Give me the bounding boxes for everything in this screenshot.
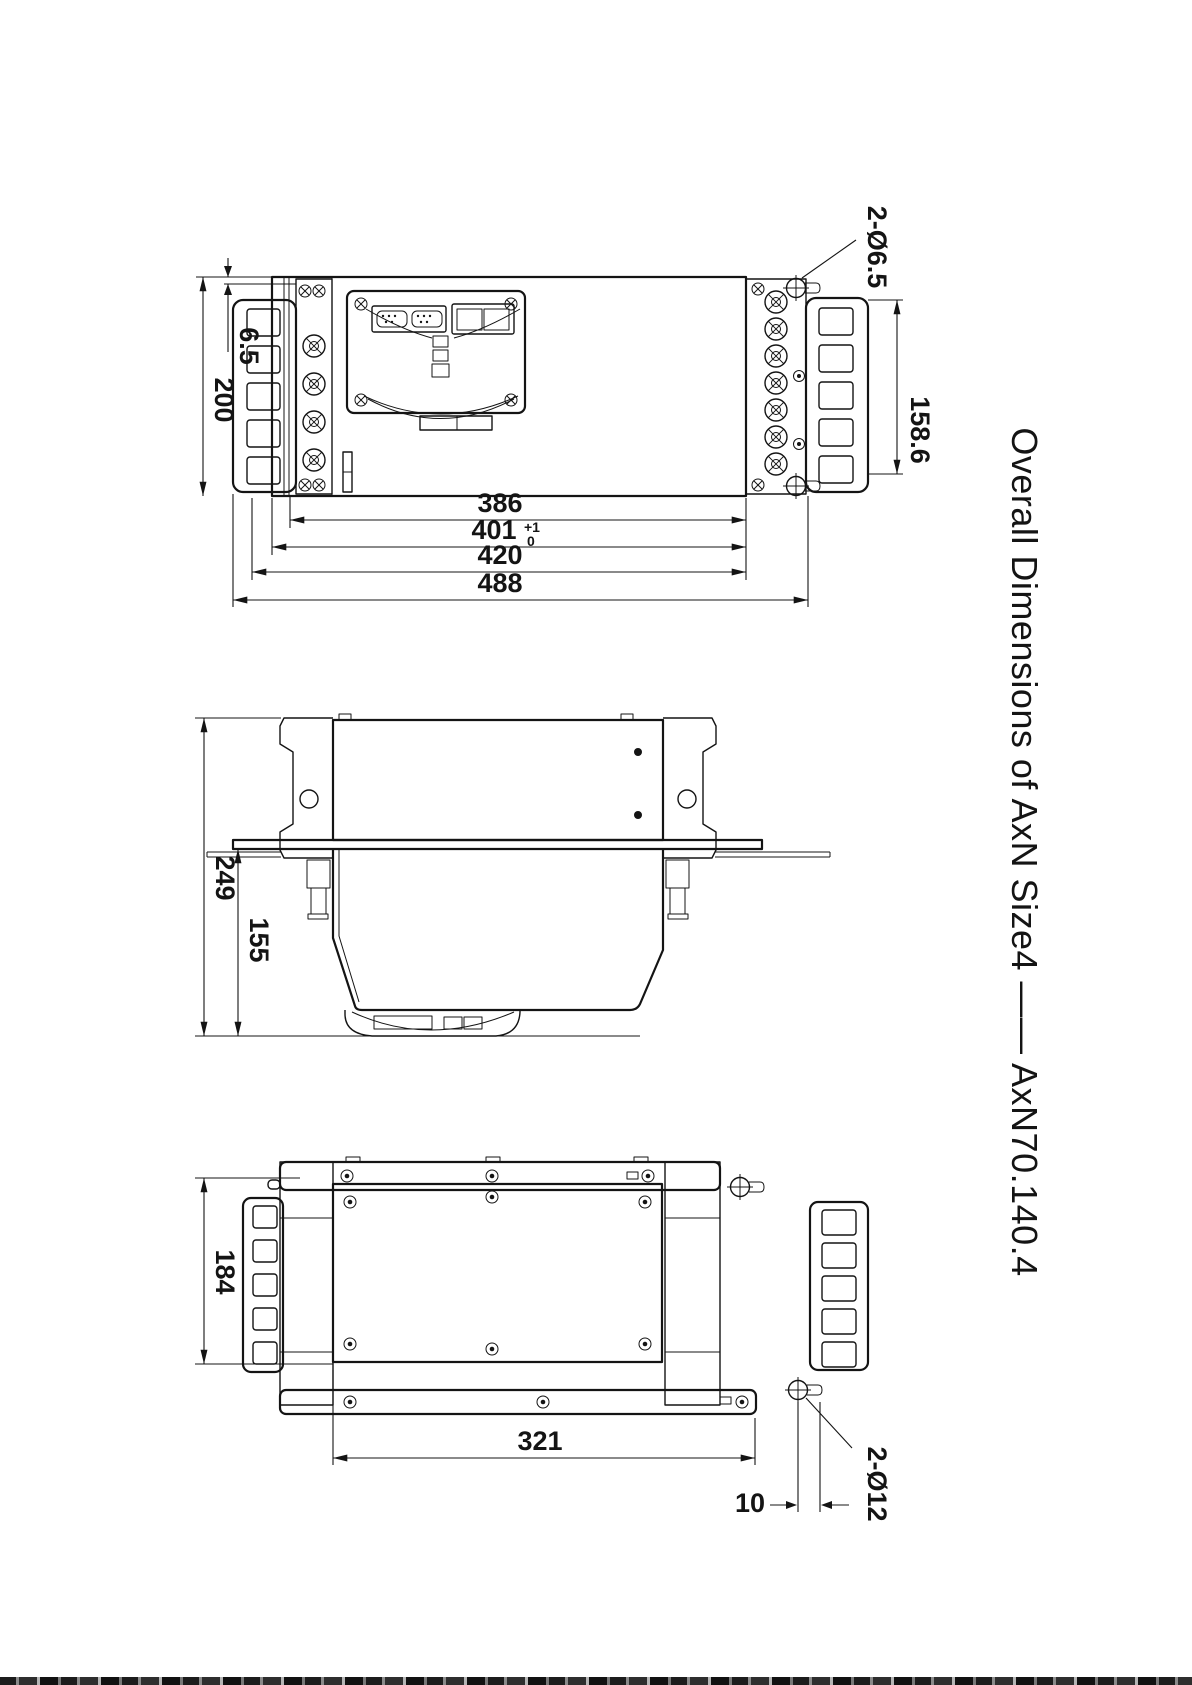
dim-text-200: 200	[209, 377, 239, 422]
base-plate	[333, 1184, 662, 1362]
fin-cutout	[253, 1206, 277, 1228]
terminal-screw	[765, 345, 787, 367]
fin-cutout	[822, 1342, 856, 1367]
right-fin-bracket	[810, 1202, 868, 1370]
plate-screw	[344, 1196, 356, 1208]
terminal-screw	[765, 453, 787, 475]
fin-cutout	[822, 1243, 856, 1268]
bottom-connector-pod	[345, 1010, 520, 1036]
dsub-connector	[412, 311, 442, 327]
fin-cutout	[819, 308, 853, 335]
fin-cutout	[819, 382, 853, 409]
dim-text-155: 155	[244, 917, 274, 962]
drawing-title: Overall Dimensions of AxN Size4 —— AxN70…	[1004, 427, 1045, 1276]
connector-panel	[347, 291, 525, 419]
terminal-screw	[303, 335, 325, 357]
terminal-screw	[765, 426, 787, 448]
right-side-rail	[665, 1162, 720, 1405]
screw	[341, 1170, 353, 1182]
fin-cutout	[819, 456, 853, 483]
dim-10: 10	[735, 1402, 849, 1518]
fin-cutout	[822, 1210, 856, 1235]
corner-screw	[752, 283, 764, 295]
right-clip	[666, 860, 689, 919]
fin-cutout	[819, 345, 853, 372]
dim-6-5: 6.5	[224, 258, 264, 365]
panel-screw	[355, 394, 367, 406]
corner-screw	[313, 479, 325, 491]
callout-2-d6-5: 2-Ø6.5	[802, 206, 892, 289]
fin-cutout	[819, 419, 853, 446]
fin-cutout	[247, 457, 280, 484]
dim-321: 321	[333, 1370, 755, 1465]
mounting-stud	[783, 473, 820, 499]
heatsink-shroud	[333, 849, 663, 1010]
fin-cutout	[247, 383, 280, 410]
dim-text-10: 10	[735, 1488, 765, 1518]
left-fin-bracket	[243, 1198, 283, 1372]
fin-cutout	[253, 1342, 277, 1364]
screw	[344, 1396, 356, 1408]
rj45-port	[457, 309, 482, 330]
plate-screw	[486, 1191, 498, 1203]
fin-cutout	[822, 1309, 856, 1334]
dim-chain-width: 386 401 +1 0 420 488	[233, 488, 808, 607]
plate-screw	[344, 1338, 356, 1350]
panel-screw	[355, 298, 367, 310]
fin-cutout	[247, 420, 280, 447]
right-mounting-bracket	[663, 718, 716, 858]
dsub-connector-block	[372, 306, 446, 332]
plate-screw	[486, 1343, 498, 1355]
dim-158-6: 158.6	[868, 300, 935, 474]
dim-text-321: 321	[517, 1426, 562, 1456]
bottom-view: 184 321 10 2-Ø12	[195, 1157, 892, 1522]
terminal-screw	[303, 449, 325, 471]
callout-2-d12: 2-Ø12	[806, 1398, 892, 1522]
left-clip	[307, 860, 330, 919]
corner-screw	[299, 479, 311, 491]
dim-155: 155	[238, 849, 274, 1036]
dim-text-386: 386	[477, 488, 522, 518]
plate-screw	[639, 1196, 651, 1208]
dim-200: 200	[196, 277, 296, 496]
dim-text-6-5: 6.5	[234, 327, 264, 365]
page-scan-artifact	[0, 1677, 1192, 1685]
dim-text-158-6: 158.6	[905, 396, 935, 464]
mounting-stud	[727, 1174, 764, 1200]
right-terminal-block	[746, 279, 806, 494]
terminal-screw	[765, 318, 787, 340]
right-fin-bracket	[806, 298, 868, 492]
callout-text-2-d12: 2-Ø12	[862, 1446, 892, 1521]
drawing-page: 200 6.5 158.6 2-Ø6.5	[0, 0, 1192, 1685]
dim-text-184: 184	[210, 1249, 240, 1294]
callout-text-2-d6-5: 2-Ø6.5	[862, 206, 892, 289]
bracket-hole	[300, 790, 318, 808]
fin-cutout	[253, 1274, 277, 1296]
screw	[486, 1170, 498, 1182]
fin-cutout	[822, 1276, 856, 1301]
terminal-screw	[303, 411, 325, 433]
mounting-plate	[233, 840, 762, 849]
left-mounting-bracket	[280, 718, 333, 858]
mounting-stud	[785, 1377, 822, 1403]
corner-screw	[752, 479, 764, 491]
front-view: 200 6.5 158.6 2-Ø6.5	[196, 206, 935, 607]
small-connector	[433, 350, 448, 361]
rj45-port	[484, 309, 509, 330]
terminal-screw	[765, 291, 787, 313]
fin-cutout	[253, 1308, 277, 1330]
dim-text-401-tol-lower: 0	[527, 533, 535, 549]
side-notch	[268, 1180, 280, 1189]
dsub-connector	[377, 311, 407, 327]
dim-249: 249	[195, 718, 640, 1036]
screw	[736, 1396, 748, 1408]
terminal-screw	[765, 372, 787, 394]
small-connector	[433, 336, 448, 347]
terminal-screw	[765, 399, 787, 421]
screw	[537, 1396, 549, 1408]
small-connector	[432, 364, 449, 377]
plate-screw	[639, 1338, 651, 1350]
dim-text-488: 488	[477, 568, 522, 598]
corner-screw	[299, 285, 311, 297]
dim-text-249: 249	[210, 855, 240, 900]
fin-cutout	[253, 1240, 277, 1262]
left-side-rail	[280, 1162, 333, 1405]
corner-screw	[313, 285, 325, 297]
dim-text-420: 420	[477, 540, 522, 570]
bracket-hole	[678, 790, 696, 808]
left-terminal-rail	[296, 279, 332, 494]
upper-body	[333, 720, 663, 840]
side-view: 249 155	[195, 714, 830, 1036]
screw	[642, 1170, 654, 1182]
terminal-screw	[303, 373, 325, 395]
technical-drawing-canvas: 200 6.5 158.6 2-Ø6.5	[0, 0, 1192, 1685]
